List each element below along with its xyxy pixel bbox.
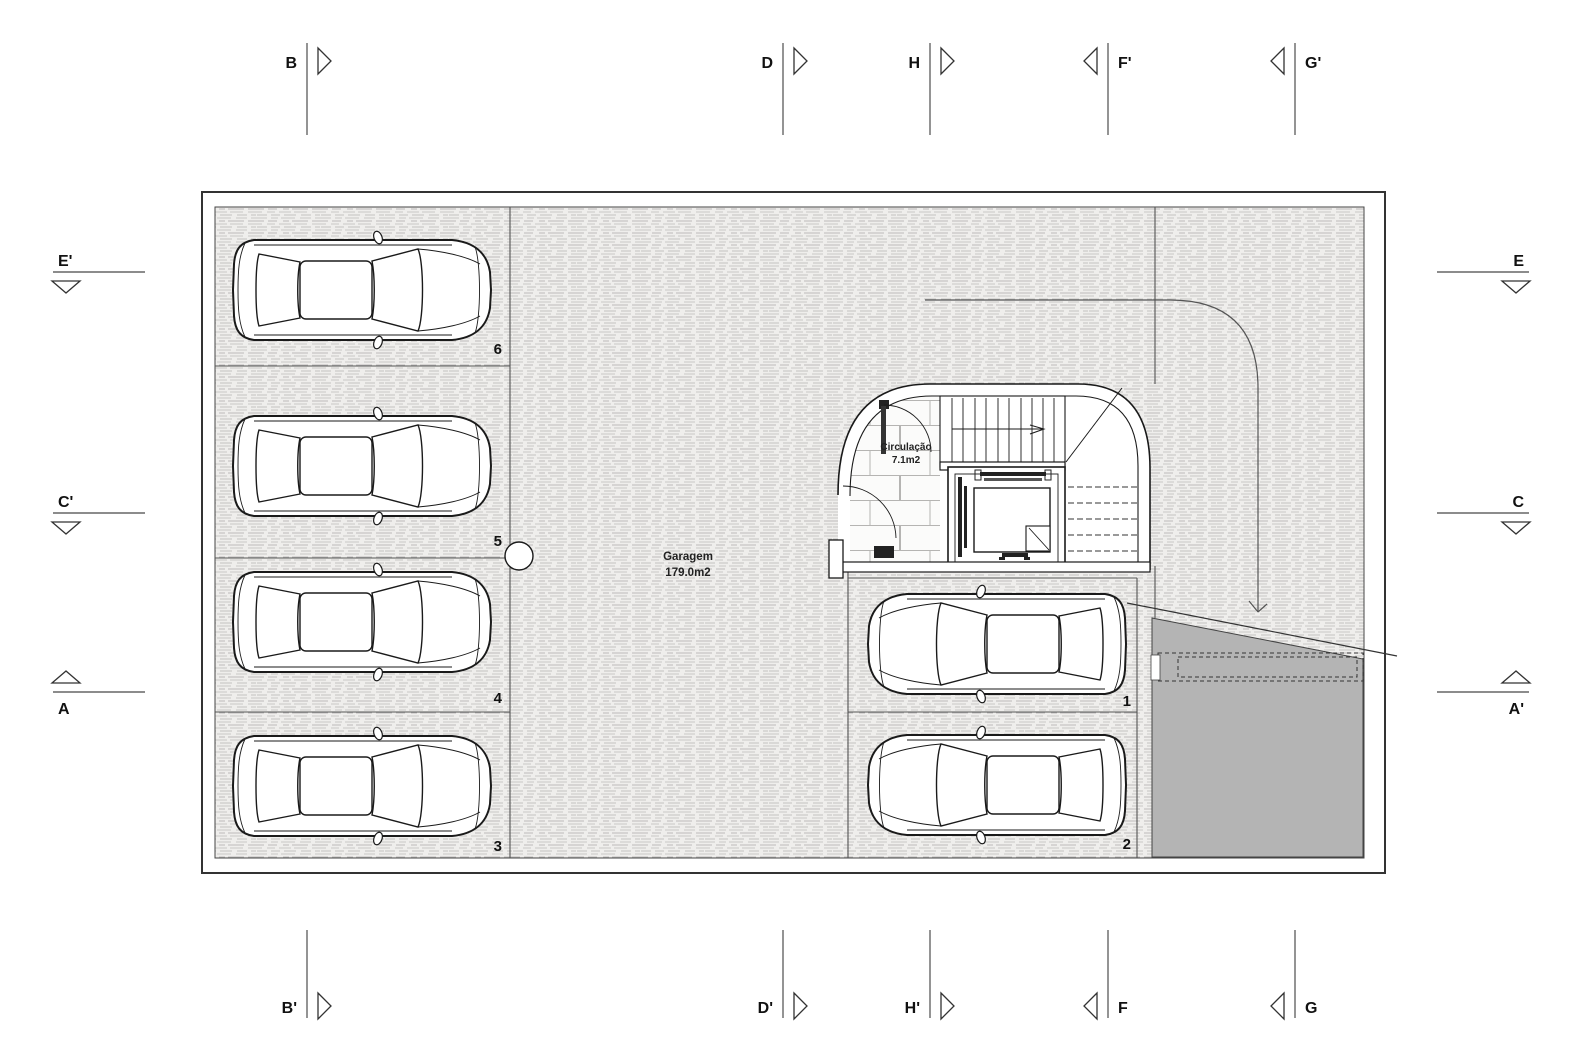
svg-text:D: D bbox=[761, 55, 773, 72]
ramp-fill bbox=[1152, 618, 1363, 857]
svg-text:B': B' bbox=[282, 1000, 297, 1017]
section-marker-d-prime: D' bbox=[758, 930, 807, 1019]
section-marker-g-prime: G' bbox=[1271, 43, 1321, 135]
column bbox=[505, 542, 533, 570]
svg-text:E: E bbox=[1513, 253, 1524, 270]
svg-text:F: F bbox=[1118, 1000, 1128, 1017]
car-space-3 bbox=[233, 726, 491, 846]
garage-room-name: Garagem bbox=[663, 551, 713, 563]
space-number-6: 6 bbox=[494, 341, 502, 358]
section-marker-f: F bbox=[1084, 930, 1128, 1019]
elevator bbox=[948, 467, 1065, 570]
car-space-5 bbox=[233, 406, 491, 526]
car-space-1 bbox=[868, 584, 1126, 704]
circulation-room-area: 7.1m2 bbox=[892, 455, 921, 466]
circulation-room-name: Circulação bbox=[880, 442, 931, 453]
car-space-2 bbox=[868, 725, 1126, 845]
svg-text:G: G bbox=[1305, 1000, 1317, 1017]
svg-text:G': G' bbox=[1305, 55, 1321, 72]
svg-text:E': E' bbox=[58, 253, 72, 270]
section-marker-b: B bbox=[285, 43, 331, 135]
svg-text:H': H' bbox=[905, 1000, 920, 1017]
section-marker-c: C bbox=[1437, 494, 1530, 534]
stair-core: Circulação 7.1m2 bbox=[829, 384, 1150, 578]
section-marker-e-prime: E' bbox=[52, 253, 145, 293]
section-marker-h: H bbox=[908, 43, 954, 135]
svg-text:F': F' bbox=[1118, 55, 1132, 72]
garage-room-area: 179.0m2 bbox=[665, 567, 710, 579]
svg-text:A': A' bbox=[1509, 701, 1524, 718]
space-number-2: 2 bbox=[1123, 836, 1131, 853]
section-marker-g: G bbox=[1271, 930, 1317, 1019]
svg-text:H: H bbox=[908, 55, 920, 72]
floor-plan-canvas: Circulação 7.1m2 6 5 4 3 1 2 Garagem 179… bbox=[0, 0, 1572, 1058]
section-marker-d: D bbox=[761, 43, 807, 135]
svg-text:D': D' bbox=[758, 1000, 773, 1017]
svg-text:C: C bbox=[1512, 494, 1524, 511]
space-number-1: 1 bbox=[1123, 693, 1131, 710]
svg-text:A: A bbox=[58, 701, 70, 718]
section-marker-h-prime: H' bbox=[905, 930, 954, 1019]
car-space-4 bbox=[233, 562, 491, 682]
section-marker-e: E bbox=[1437, 253, 1530, 293]
section-marker-f-prime: F' bbox=[1084, 43, 1132, 135]
svg-text:B: B bbox=[285, 55, 297, 72]
section-marker-a: A bbox=[52, 671, 145, 718]
space-number-5: 5 bbox=[494, 533, 502, 550]
svg-text:C': C' bbox=[58, 494, 73, 511]
space-number-3: 3 bbox=[494, 838, 502, 855]
car-space-6 bbox=[233, 230, 491, 350]
section-marker-c-prime: C' bbox=[52, 494, 145, 534]
section-marker-a-prime: A' bbox=[1437, 671, 1530, 718]
space-number-4: 4 bbox=[494, 690, 503, 707]
section-marker-b-prime: B' bbox=[282, 930, 331, 1019]
